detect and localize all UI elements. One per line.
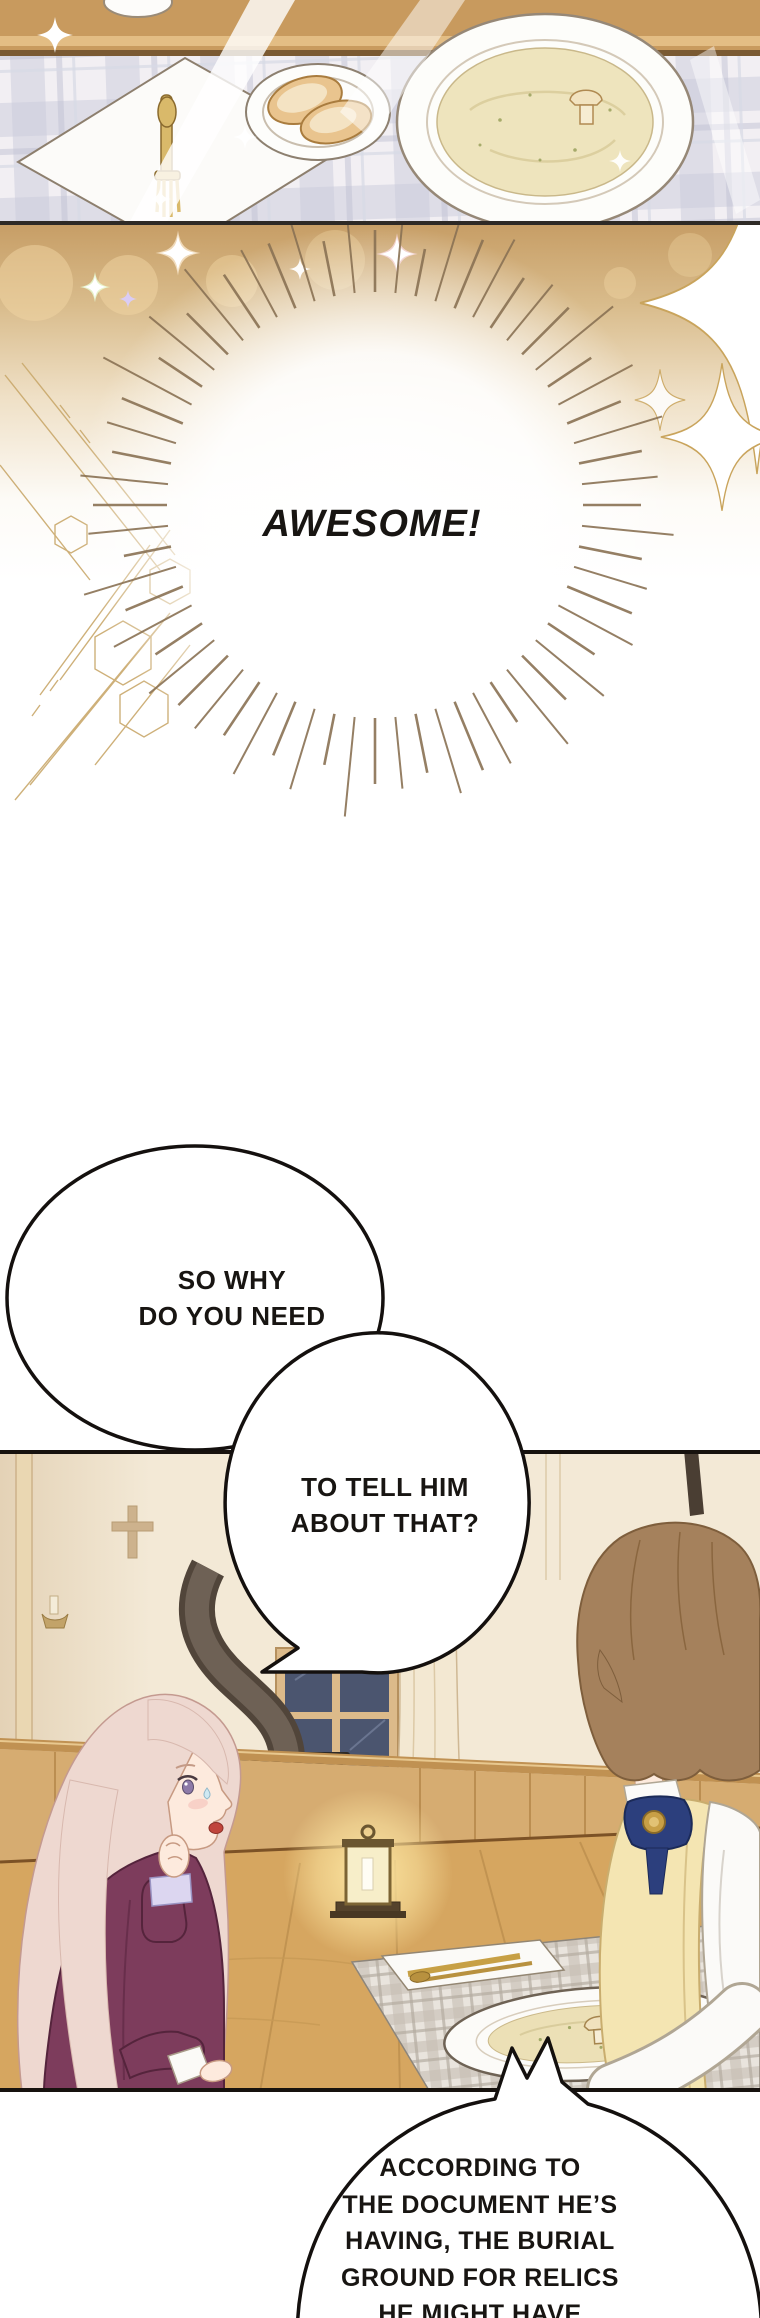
woman-cuff: [150, 1874, 192, 1906]
panel-scene: [0, 1450, 760, 2092]
woman-hand: [159, 1835, 189, 1877]
dialogue-line: GROUND FOR RELICS: [300, 2260, 660, 2297]
dialogue-line: TO TELL HIM: [265, 1469, 505, 1505]
panel-food-table: [0, 0, 760, 225]
panel-border-bottom: [0, 221, 760, 225]
dialogue-line: SO WHY: [112, 1262, 352, 1298]
dialogue-line: ACCORDING TO: [300, 2150, 660, 2187]
sparkle-decor-and-burst: [0, 225, 760, 1150]
gold-cross-sparkles: [635, 225, 760, 511]
wall-post: [16, 1450, 32, 1750]
dialogue-line: HAVING, THE BURIAL: [300, 2223, 660, 2260]
dialogue-line: DO YOU NEED: [112, 1298, 352, 1334]
dialogue-line: HE MIGHT HAVE: [300, 2296, 660, 2318]
star-sparkles: [80, 231, 418, 309]
lantern: [283, 1789, 453, 1959]
gold-line-ornament: [0, 363, 190, 800]
dialogue-line: ABOUT THAT?: [265, 1505, 505, 1541]
dialogue-tell-him: TO TELL HIM ABOUT THAT?: [265, 1469, 505, 1541]
comic-page: AWESOME!: [0, 0, 760, 2318]
panel-border-bottom2: [0, 2088, 760, 2092]
man-hair: [577, 1523, 760, 1781]
dialogue-so-why: SO WHY DO YOU NEED: [112, 1262, 352, 1334]
bokeh-circles: [0, 230, 712, 321]
awesome-exclamation: AWESOME!: [172, 503, 572, 546]
dialogue-line: THE DOCUMENT HE’S: [300, 2187, 660, 2224]
soup-plate: [397, 14, 693, 225]
woman-mouth: [209, 1823, 223, 1834]
panel-border-top: [0, 1450, 760, 1454]
dialogue-according: ACCORDING TO THE DOCUMENT HE’S HAVING, T…: [300, 2150, 660, 2318]
